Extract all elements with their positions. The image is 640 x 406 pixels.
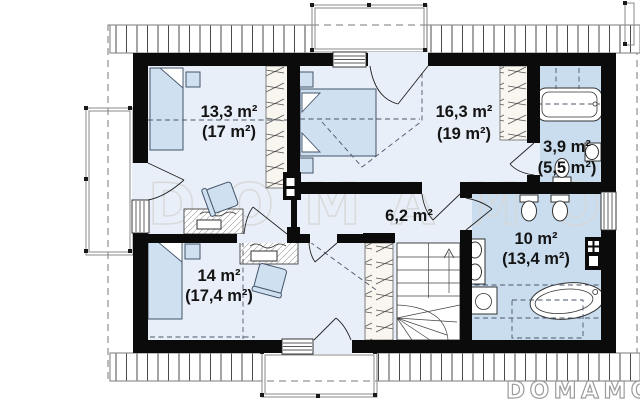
- staircase: [397, 243, 460, 340]
- label-bedroom-bottom-left-gross: (17,4 m²): [185, 287, 253, 305]
- door-opening-bedroom-bottom-left: [310, 234, 337, 243]
- balcony-bottom: [260, 350, 377, 398]
- wardrobe-bedroom-top-left: [266, 66, 288, 188]
- floor-plan-drawing: DOMAMO: [0, 0, 640, 406]
- wall-thin-hall-west: [291, 200, 297, 227]
- wardrobe-bedroom-top-middle: [500, 66, 528, 140]
- bed-bedroom-bottom-left: [148, 242, 182, 319]
- door-opening-bedroom-top-left: [237, 234, 287, 243]
- chimney: [283, 172, 301, 200]
- wardrobe-hallway: [365, 243, 393, 340]
- toilet-large-bathroom: [520, 195, 538, 221]
- nightstand-top-middle-2: [298, 158, 313, 173]
- wall-large-bathroom-west-stub: [460, 194, 472, 198]
- label-bathroom-large-gross: (13,4 m²): [502, 250, 570, 268]
- wall-small-bathroom-west-stub: [527, 175, 540, 194]
- door-opening-large-bathroom: [460, 198, 472, 230]
- label-bedroom-top-middle-gross: (19 m²): [437, 125, 491, 143]
- door-opening-bedroom-top-middle: [422, 182, 460, 194]
- balcony-top: [310, 3, 427, 52]
- floor-plan-page: DOMAMO: [0, 0, 640, 406]
- wall-post-hall: [287, 227, 300, 243]
- watermark-corner: DOMAMO: [506, 378, 640, 404]
- bed-bedroom-top-left: [150, 68, 183, 150]
- window-right-wall: [601, 192, 616, 230]
- roof-band-top-left: [110, 25, 312, 53]
- desk-bedroom-bottom-left: [240, 240, 298, 264]
- balcony-door-opening-top: [368, 52, 428, 67]
- label-bedroom-top-left-gross: (17 m²): [202, 123, 256, 141]
- bidet-large-bathroom: [551, 195, 569, 221]
- bathtub-small-bathroom: [537, 88, 602, 121]
- window-left-wall: [132, 200, 149, 233]
- wall-above-hall-wardrobe: [363, 233, 395, 243]
- roof-band-bottom-left: [110, 353, 262, 381]
- wall-large-bathroom-west: [460, 230, 472, 340]
- label-bedroom-top-middle-area: 16,3 m²: [436, 103, 493, 121]
- roof-band-bottom-right: [377, 353, 640, 381]
- balcony-door-opening-bottom: [313, 339, 352, 354]
- label-bathroom-small-gross: (5,5 m²): [538, 159, 597, 177]
- window-bottom-wall: [282, 339, 313, 354]
- wall-between-top-bedrooms: [287, 66, 300, 188]
- wall-hall-south-stub-1: [300, 234, 310, 243]
- nightstand-top-middle-1: [298, 72, 313, 87]
- wall-bedrooms-left-divider: [133, 234, 237, 243]
- wall-hall-south-stub-2: [337, 234, 363, 243]
- wall-small-bathroom-west: [527, 66, 540, 143]
- nightstand-bedroom-bottom-left: [185, 244, 200, 259]
- nightstand-bedroom-top-left: [186, 72, 200, 87]
- washing-machine: [470, 287, 497, 314]
- window-top-wall: [333, 52, 366, 67]
- label-bedroom-bottom-left-area: 14 m²: [197, 267, 241, 285]
- wall-bottom: [133, 340, 616, 353]
- label-hallway-area: 6,2 m²: [385, 207, 433, 225]
- label-bathroom-large-area: 10 m²: [514, 230, 558, 248]
- heater-large-bathroom: [585, 237, 602, 270]
- label-bedroom-top-left-area: 13,3 m²: [201, 103, 258, 121]
- balcony-door-opening-left: [132, 163, 149, 200]
- double-bed-bedroom-top-middle: [300, 89, 376, 156]
- label-bathroom-small-area: 3,9 m²: [543, 138, 591, 156]
- roof-band-top-right: [427, 25, 640, 53]
